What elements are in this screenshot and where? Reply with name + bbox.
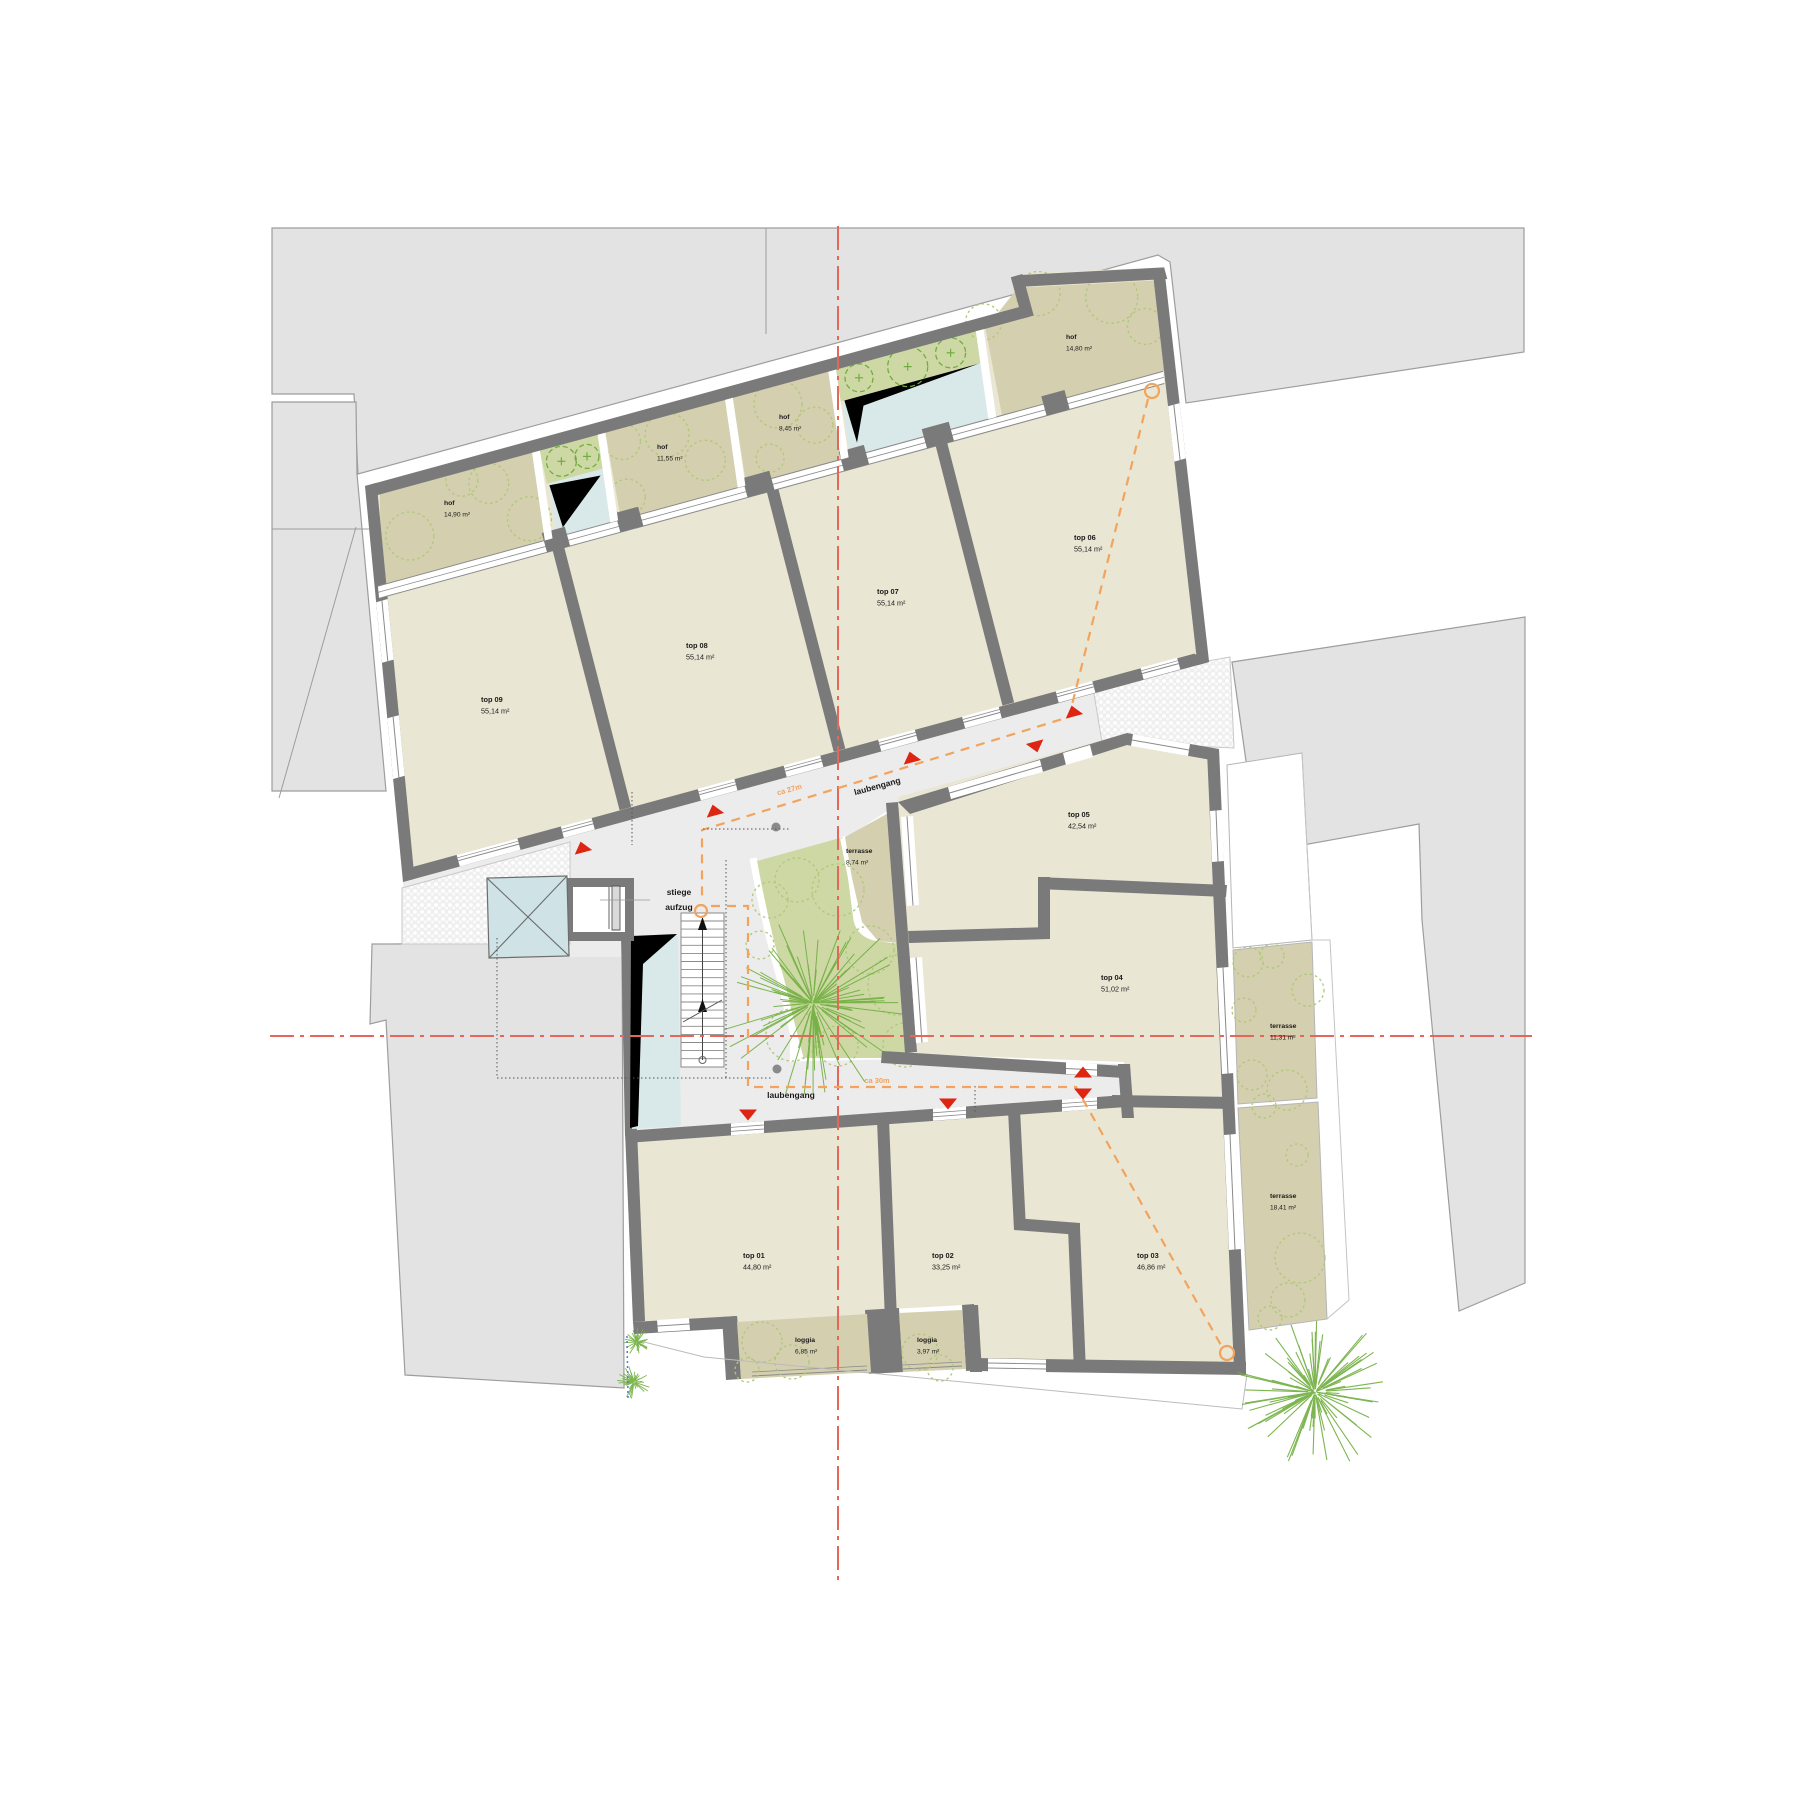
svg-text:terrasse: terrasse bbox=[846, 848, 873, 855]
svg-text:14,80 m²: 14,80 m² bbox=[1066, 346, 1093, 353]
svg-text:14,90 m²: 14,90 m² bbox=[444, 512, 471, 519]
svg-text:8,45 m²: 8,45 m² bbox=[779, 426, 802, 433]
svg-text:loggia: loggia bbox=[917, 1337, 937, 1344]
svg-text:42,54 m²: 42,54 m² bbox=[1068, 822, 1097, 831]
svg-text:11,31 m²: 11,31 m² bbox=[1270, 1035, 1296, 1042]
svg-text:top 08: top 08 bbox=[686, 641, 708, 650]
svg-text:hof: hof bbox=[779, 414, 790, 421]
svg-text:44,80 m²: 44,80 m² bbox=[743, 1263, 772, 1272]
svg-text:55,14 m²: 55,14 m² bbox=[686, 653, 715, 662]
svg-text:hof: hof bbox=[1066, 334, 1077, 341]
svg-text:55,14 m²: 55,14 m² bbox=[1074, 545, 1103, 554]
svg-text:top 07: top 07 bbox=[877, 587, 899, 596]
svg-text:55,14 m²: 55,14 m² bbox=[877, 599, 906, 608]
svg-text:laubengang: laubengang bbox=[767, 1090, 815, 1100]
svg-text:46,86 m²: 46,86 m² bbox=[1137, 1263, 1166, 1272]
svg-text:terrasse: terrasse bbox=[1270, 1023, 1297, 1030]
svg-text:terrasse: terrasse bbox=[1270, 1193, 1297, 1200]
svg-text:ca 30m: ca 30m bbox=[864, 1076, 890, 1085]
svg-text:top 04: top 04 bbox=[1101, 973, 1124, 982]
svg-text:top 05: top 05 bbox=[1068, 810, 1090, 819]
svg-text:top 06: top 06 bbox=[1074, 533, 1096, 542]
svg-text:hof: hof bbox=[657, 444, 668, 451]
svg-text:33,25 m²: 33,25 m² bbox=[932, 1263, 961, 1272]
svg-text:aufzug: aufzug bbox=[665, 902, 692, 912]
svg-text:hof: hof bbox=[444, 500, 455, 507]
svg-text:loggia: loggia bbox=[795, 1337, 815, 1344]
svg-text:top 03: top 03 bbox=[1137, 1251, 1159, 1260]
svg-text:18,41 m²: 18,41 m² bbox=[1270, 1205, 1297, 1212]
svg-text:3,97 m²: 3,97 m² bbox=[917, 1349, 940, 1356]
svg-text:top 02: top 02 bbox=[932, 1251, 954, 1260]
svg-text:stiege: stiege bbox=[667, 887, 692, 897]
svg-text:11,55 m²: 11,55 m² bbox=[657, 456, 683, 463]
svg-text:top 09: top 09 bbox=[481, 695, 503, 704]
svg-text:6,85 m²: 6,85 m² bbox=[795, 1349, 818, 1356]
svg-text:55,14 m²: 55,14 m² bbox=[481, 707, 510, 716]
svg-text:top 01: top 01 bbox=[743, 1251, 765, 1260]
svg-text:8,74 m²: 8,74 m² bbox=[846, 860, 869, 867]
svg-text:51,02 m²: 51,02 m² bbox=[1101, 985, 1130, 994]
